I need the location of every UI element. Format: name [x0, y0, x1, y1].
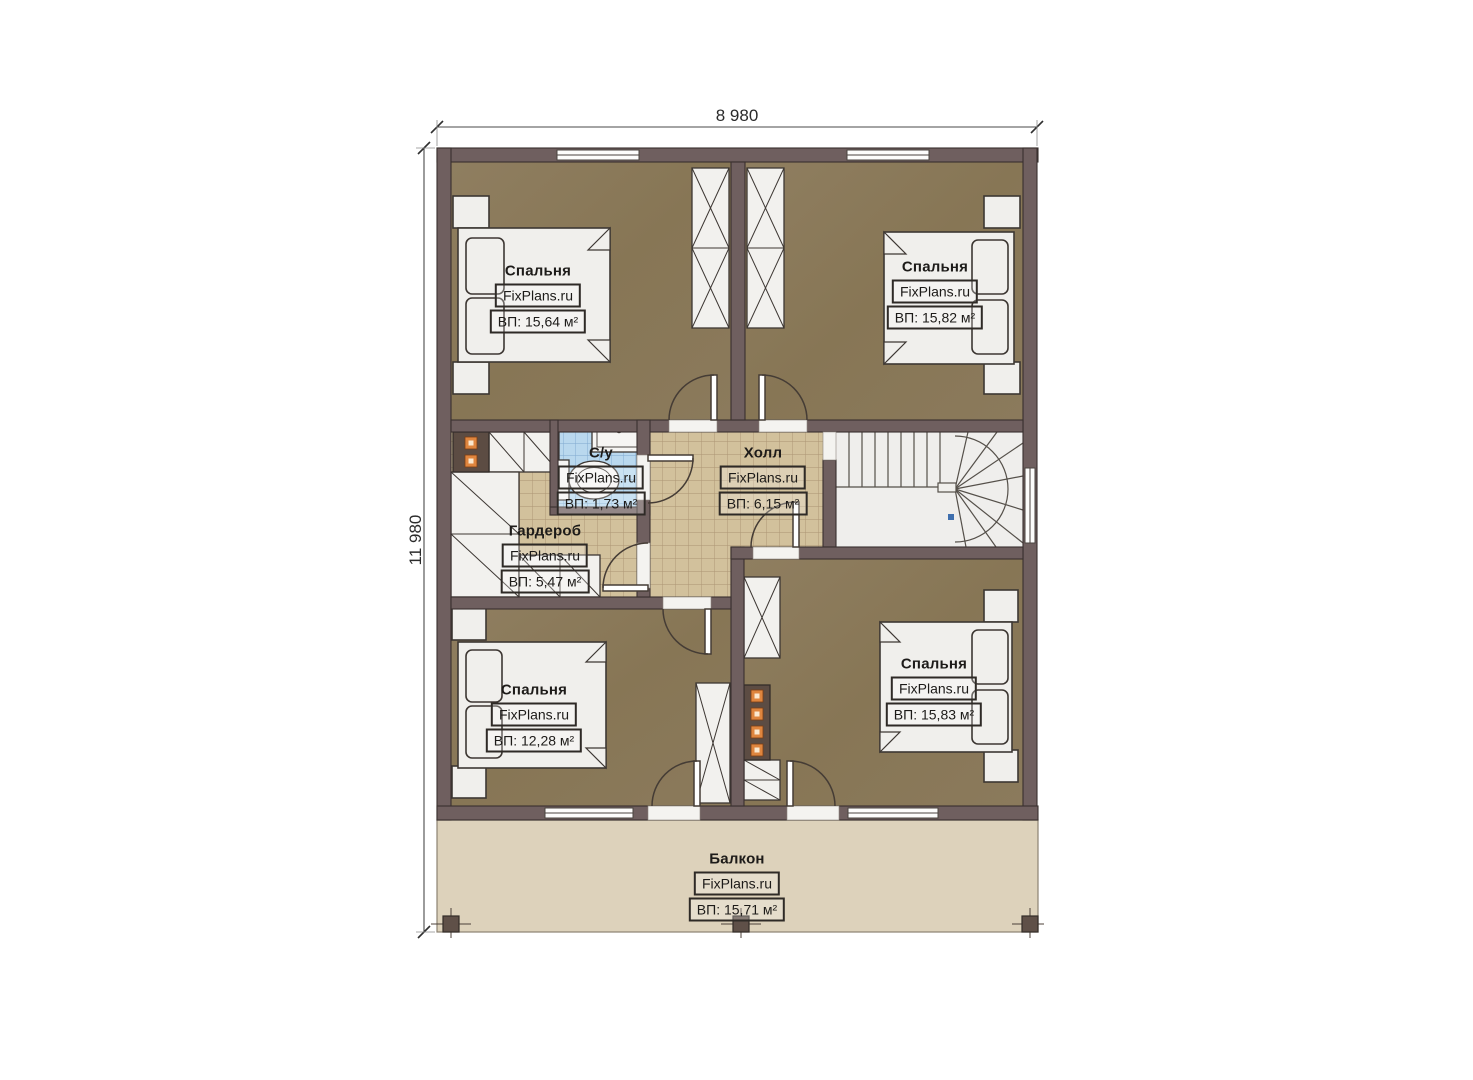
wall-interior — [731, 162, 745, 420]
room-label-bathroom: С/у FixPlans.ru ВП: 1,73 м² — [557, 445, 646, 516]
room-name: Спальня — [505, 263, 571, 280]
watermark: FixPlans.ru — [694, 872, 780, 896]
room-area: ВП: 6,15 м² — [719, 492, 808, 516]
room-name: Холл — [744, 445, 782, 462]
room-area: ВП: 15,82 м² — [887, 306, 983, 330]
room-name: Спальня — [901, 656, 967, 673]
nightstand — [453, 362, 489, 394]
window — [545, 808, 633, 818]
nightstand — [984, 590, 1018, 622]
vent-shaft — [692, 168, 729, 328]
chimney-block — [744, 685, 770, 760]
room-name: Гардероб — [509, 523, 582, 540]
window — [557, 150, 639, 160]
wall-exterior-top — [437, 148, 1038, 162]
nightstand — [452, 608, 486, 640]
wall-interior — [823, 460, 836, 547]
nightstand — [453, 196, 489, 228]
wall-interior — [451, 420, 1023, 432]
watermark: FixPlans.ru — [720, 466, 806, 490]
room-label-hall: Холл FixPlans.ru ВП: 6,15 м² — [719, 445, 808, 516]
room-area: ВП: 15,64 м² — [490, 310, 586, 334]
watermark: FixPlans.ru — [491, 703, 577, 727]
window — [848, 808, 938, 818]
room-area: ВП: 12,28 м² — [486, 729, 582, 753]
nightstand — [984, 196, 1020, 228]
vent-shaft — [747, 168, 784, 328]
wall-exterior-bottom — [437, 806, 1038, 820]
window — [847, 150, 929, 160]
watermark: FixPlans.ru — [891, 677, 977, 701]
cabinet — [744, 760, 780, 800]
watermark: FixPlans.ru — [495, 284, 581, 308]
room-area: ВП: 5,47 м² — [501, 570, 590, 594]
vent-shaft — [744, 577, 780, 658]
room-area: ВП: 15,71 м² — [689, 898, 785, 922]
watermark: FixPlans.ru — [558, 466, 644, 490]
room-name: Спальня — [501, 682, 567, 699]
room-area: ВП: 15,83 м² — [886, 703, 982, 727]
nightstand — [452, 766, 486, 798]
wall-interior — [731, 547, 744, 806]
room-name: С/у — [589, 445, 613, 462]
chimney-block — [453, 432, 489, 472]
dimension-height-label: 11 980 — [406, 515, 426, 566]
room-label-wardrobe: Гардероб FixPlans.ru ВП: 5,47 м² — [501, 523, 590, 594]
closet — [489, 432, 559, 472]
vent-shaft — [696, 683, 730, 803]
floor-plan-canvas: 8 980 11 980 Спальня FixPlans.ru ВП: 15,… — [0, 0, 1473, 1080]
room-label-balcony: Балкон FixPlans.ru ВП: 15,71 м² — [689, 851, 785, 922]
stairwell-floor — [836, 432, 1023, 547]
stair-marker — [948, 514, 954, 520]
room-label-bedroom-top-right: Спальня FixPlans.ru ВП: 15,82 м² — [887, 259, 983, 330]
room-label-bedroom-bottom-right: Спальня FixPlans.ru ВП: 15,83 м² — [886, 656, 982, 727]
nightstand — [984, 750, 1018, 782]
room-label-bedroom-bottom-left: Спальня FixPlans.ru ВП: 12,28 м² — [486, 682, 582, 753]
watermark: FixPlans.ru — [892, 280, 978, 304]
room-name: Спальня — [902, 259, 968, 276]
watermark: FixPlans.ru — [502, 544, 588, 568]
nightstand — [984, 362, 1020, 394]
room-area: ВП: 1,73 м² — [557, 492, 646, 516]
room-label-bedroom-top-left: Спальня FixPlans.ru ВП: 15,64 м² — [490, 263, 586, 334]
wall-exterior-left — [437, 148, 451, 820]
dimension-width-label: 8 980 — [716, 106, 759, 126]
window — [1025, 468, 1035, 543]
room-name: Балкон — [709, 851, 764, 868]
